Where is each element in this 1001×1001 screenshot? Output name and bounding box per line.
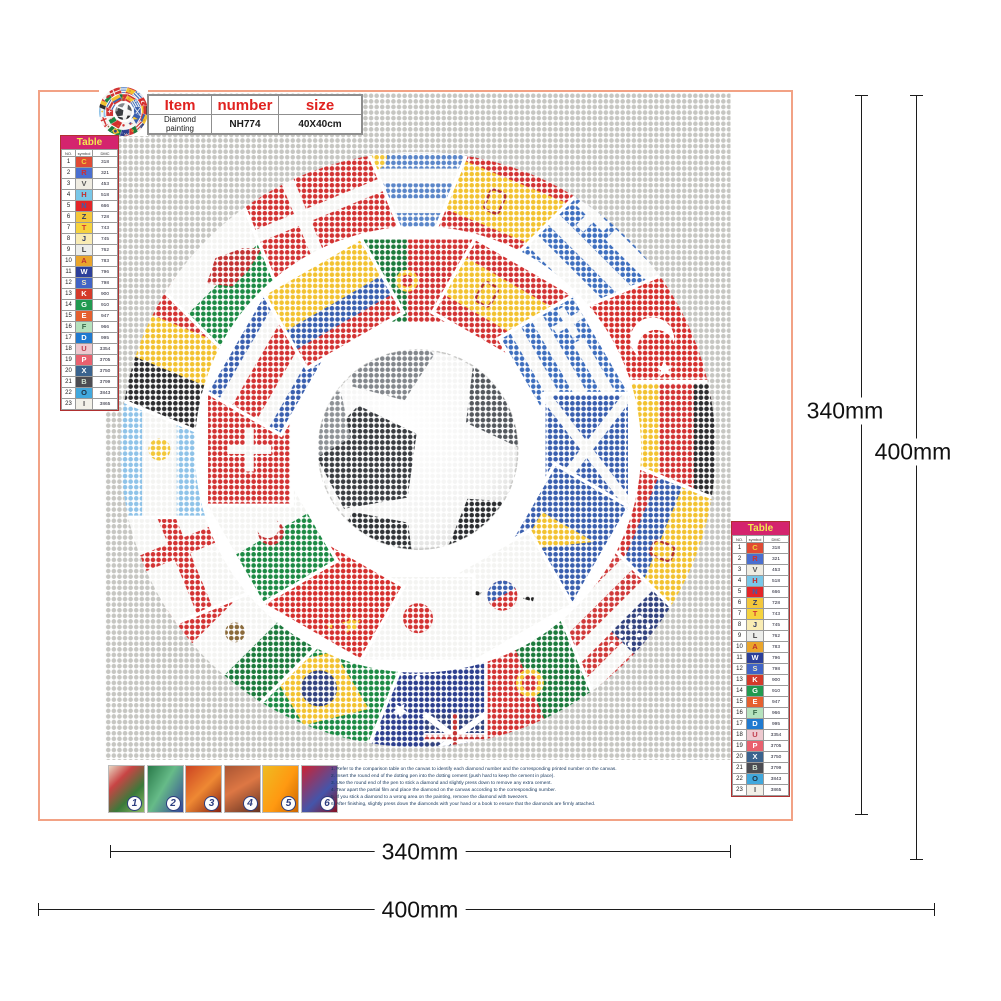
color-row: 9L762 (733, 631, 789, 642)
color-code: 745 (93, 234, 118, 245)
color-symbol: C (747, 543, 764, 554)
color-code: 910 (93, 300, 118, 311)
color-code: 745 (764, 620, 789, 631)
color-no: 21 (62, 377, 76, 388)
color-code: 743 (93, 223, 118, 234)
color-symbol: U (747, 730, 764, 741)
color-code: 798 (93, 278, 118, 289)
color-table-left: TableNO.symbolDMC1C3182R3213V4534H5185N6… (60, 135, 119, 411)
color-no: 4 (62, 190, 76, 201)
color-code: 966 (764, 708, 789, 719)
dim-label-bottom-inner: 340mm (375, 839, 466, 866)
step-number: 2 (166, 796, 181, 811)
step-photo-5: 5 (262, 765, 299, 813)
color-symbol: F (747, 708, 764, 719)
color-row: 13K900 (62, 289, 118, 300)
instruction-list: 1. Refer to the comparison table on the … (331, 766, 596, 808)
color-no: 18 (733, 730, 747, 741)
instruction-line: 1. Refer to the comparison table on the … (331, 766, 596, 773)
color-no: 23 (62, 399, 76, 410)
color-symbol: X (747, 752, 764, 763)
color-symbol: B (747, 763, 764, 774)
color-row: 23I3865 (733, 785, 789, 796)
dim-tick (855, 814, 868, 815)
color-symbol: G (76, 300, 93, 311)
color-symbol: P (76, 355, 93, 366)
color-no: 6 (62, 212, 76, 223)
color-symbol: O (76, 388, 93, 399)
color-symbol: W (76, 267, 93, 278)
color-symbol: K (747, 675, 764, 686)
dim-tick (934, 903, 935, 916)
instruction-line: 6. After finishing, slightly press down … (331, 801, 596, 808)
color-row: 12S798 (62, 278, 118, 289)
color-table-right: TableNO.symbolDMC1C3182R3213V4534H5185N6… (731, 521, 790, 797)
color-row: 15E947 (62, 311, 118, 322)
color-symbol: N (76, 201, 93, 212)
color-code: 666 (764, 587, 789, 598)
color-code: 321 (93, 168, 118, 179)
color-no: 8 (733, 620, 747, 631)
step-photo-3: 3 (185, 765, 222, 813)
color-row: 17D995 (733, 719, 789, 730)
color-symbol: L (747, 631, 764, 642)
color-table-title: Table (61, 136, 118, 149)
item-number: NH774 (212, 115, 279, 135)
color-row: 23I3865 (62, 399, 118, 410)
color-row: 1C318 (733, 543, 789, 554)
color-symbol: R (76, 168, 93, 179)
color-no: 21 (733, 763, 747, 774)
color-code: 728 (93, 212, 118, 223)
instruction-line: 3. Use the round end of the pen to stick… (331, 780, 596, 787)
color-code: 728 (764, 598, 789, 609)
dim-tick (910, 95, 923, 96)
color-symbol: Z (747, 598, 764, 609)
color-code: 666 (93, 201, 118, 212)
color-row: 19P3705 (62, 355, 118, 366)
col-symbol: symbol (747, 536, 764, 543)
item-col-header: Item (148, 95, 212, 115)
color-code: 3705 (93, 355, 118, 366)
diamond-canvas (105, 93, 731, 760)
color-no: 6 (733, 598, 747, 609)
dim-label-right-inner: 340mm (800, 398, 891, 425)
color-symbol: A (747, 642, 764, 653)
col-no: NO. (62, 150, 76, 157)
color-symbol: H (747, 576, 764, 587)
color-no: 4 (733, 576, 747, 587)
color-code: 3865 (93, 399, 118, 410)
flags-soccer-artwork (105, 93, 731, 760)
item-size: 40X40cm (279, 115, 363, 135)
color-no: 13 (62, 289, 76, 300)
color-row: 20X3750 (62, 366, 118, 377)
color-code: 995 (93, 333, 118, 344)
color-symbol: I (747, 785, 764, 796)
dimension-line-right-outer (916, 95, 917, 860)
color-row: 3V453 (733, 565, 789, 576)
color-row: 3V453 (62, 179, 118, 190)
color-no: 17 (62, 333, 76, 344)
color-row: 17D995 (62, 333, 118, 344)
color-row: 20X3750 (733, 752, 789, 763)
color-code: 783 (93, 256, 118, 267)
color-no: 10 (733, 642, 747, 653)
color-symbol: J (747, 620, 764, 631)
diamond-painting-product-sheet: Item number size Diamond painting NH774 … (0, 0, 1001, 1001)
instruction-line: 4. Tear apart the partial film and place… (331, 787, 596, 794)
color-code: 3843 (764, 774, 789, 785)
color-table-title: Table (732, 522, 789, 535)
step-photo-1: 1 (108, 765, 145, 813)
color-code: 910 (764, 686, 789, 697)
color-symbol: K (76, 289, 93, 300)
color-symbol: B (76, 377, 93, 388)
color-no: 12 (733, 664, 747, 675)
color-symbol: L (76, 245, 93, 256)
color-row: 11W796 (733, 653, 789, 664)
color-no: 5 (733, 587, 747, 598)
step-number: 3 (204, 796, 219, 811)
color-symbol: U (76, 344, 93, 355)
color-code: 3865 (764, 785, 789, 796)
dim-tick (855, 95, 868, 96)
color-symbol: I (76, 399, 93, 410)
color-code: 900 (93, 289, 118, 300)
color-code: 3354 (764, 730, 789, 741)
color-symbol: G (747, 686, 764, 697)
color-row: 2R321 (62, 168, 118, 179)
color-no: 20 (733, 752, 747, 763)
color-code: 762 (93, 245, 118, 256)
color-symbol: S (76, 278, 93, 289)
color-no: 16 (733, 708, 747, 719)
color-no: 16 (62, 322, 76, 333)
color-no: 17 (733, 719, 747, 730)
instruction-line: 5. If you stick a diamond to a wrong are… (331, 794, 596, 801)
color-symbol: Z (76, 212, 93, 223)
color-symbol: D (76, 333, 93, 344)
color-symbol: W (747, 653, 764, 664)
color-symbol: N (747, 587, 764, 598)
color-symbol: A (76, 256, 93, 267)
color-symbol: J (76, 234, 93, 245)
color-no: 18 (62, 344, 76, 355)
color-code: 318 (93, 157, 118, 168)
color-no: 3 (62, 179, 76, 190)
color-symbol: X (76, 366, 93, 377)
color-no: 14 (733, 686, 747, 697)
color-row: 8J745 (62, 234, 118, 245)
color-symbol: O (747, 774, 764, 785)
color-no: 1 (62, 157, 76, 168)
dim-tick (38, 903, 39, 916)
color-row: 4H518 (62, 190, 118, 201)
color-no: 19 (733, 741, 747, 752)
color-symbol: P (747, 741, 764, 752)
color-no: 11 (62, 267, 76, 278)
color-row: 18U3354 (62, 344, 118, 355)
color-symbol: C (76, 157, 93, 168)
color-code: 3799 (764, 763, 789, 774)
color-row: 13K900 (733, 675, 789, 686)
color-row: 5N666 (62, 201, 118, 212)
color-row: 1C318 (62, 157, 118, 168)
color-row: 4H518 (733, 576, 789, 587)
color-code: 900 (764, 675, 789, 686)
color-code: 995 (764, 719, 789, 730)
dim-tick (730, 845, 731, 858)
step-thumbnails: 123456 (108, 765, 338, 811)
color-row: 8J745 (733, 620, 789, 631)
product-name: Diamond painting (148, 115, 212, 135)
color-no: 13 (733, 675, 747, 686)
color-row: 5N666 (733, 587, 789, 598)
color-row: 22O3843 (62, 388, 118, 399)
color-no: 9 (733, 631, 747, 642)
step-number: 5 (281, 796, 296, 811)
color-code: 321 (764, 554, 789, 565)
color-no: 22 (733, 774, 747, 785)
step-photo-4: 4 (224, 765, 261, 813)
color-row: 14G910 (733, 686, 789, 697)
number-col-header: number (212, 95, 279, 115)
dim-label-bottom-outer: 400mm (375, 897, 466, 924)
color-no: 7 (62, 223, 76, 234)
color-code: 3799 (93, 377, 118, 388)
color-symbol: D (747, 719, 764, 730)
color-code: 796 (93, 267, 118, 278)
color-no: 5 (62, 201, 76, 212)
color-code: 783 (764, 642, 789, 653)
color-no: 23 (733, 785, 747, 796)
dim-tick (110, 845, 111, 858)
dim-tick (910, 859, 923, 860)
color-row: 10A783 (62, 256, 118, 267)
step-number: 1 (127, 796, 142, 811)
color-no: 7 (733, 609, 747, 620)
color-symbol: T (747, 609, 764, 620)
color-symbol: V (747, 565, 764, 576)
color-no: 15 (733, 697, 747, 708)
col-symbol: symbol (76, 150, 93, 157)
color-row: 21B3799 (62, 377, 118, 388)
color-no: 20 (62, 366, 76, 377)
color-code: 966 (93, 322, 118, 333)
color-symbol: E (76, 311, 93, 322)
col-code: DMC (764, 536, 789, 543)
color-symbol: S (747, 664, 764, 675)
color-row: 9L762 (62, 245, 118, 256)
dimension-line-bottom-outer (38, 909, 935, 910)
color-row: 6Z728 (733, 598, 789, 609)
color-code: 947 (764, 697, 789, 708)
color-no: 2 (62, 168, 76, 179)
color-code: 762 (764, 631, 789, 642)
color-symbol: R (747, 554, 764, 565)
color-code: 3750 (764, 752, 789, 763)
color-code: 453 (93, 179, 118, 190)
color-no: 9 (62, 245, 76, 256)
col-no: NO. (733, 536, 747, 543)
color-row: 16F966 (62, 322, 118, 333)
color-code: 518 (764, 576, 789, 587)
color-symbol: H (76, 190, 93, 201)
dimension-line-right-inner (861, 95, 862, 815)
color-no: 1 (733, 543, 747, 554)
color-code: 3705 (764, 741, 789, 752)
color-row: 22O3843 (733, 774, 789, 785)
color-row: 7T743 (62, 223, 118, 234)
color-row: 12S798 (733, 664, 789, 675)
color-code: 3354 (93, 344, 118, 355)
color-code: 796 (764, 653, 789, 664)
col-code: DMC (93, 150, 118, 157)
color-code: 318 (764, 543, 789, 554)
color-no: 12 (62, 278, 76, 289)
step-number: 4 (243, 796, 258, 811)
color-row: 16F966 (733, 708, 789, 719)
color-row: 7T743 (733, 609, 789, 620)
color-no: 10 (62, 256, 76, 267)
color-code: 743 (764, 609, 789, 620)
color-no: 22 (62, 388, 76, 399)
color-row: 2R321 (733, 554, 789, 565)
color-no: 11 (733, 653, 747, 664)
dim-label-right-outer: 400mm (868, 439, 959, 466)
instruction-line: 2. Insert the round end of the dotting p… (331, 773, 596, 780)
color-symbol: T (76, 223, 93, 234)
color-no: 2 (733, 554, 747, 565)
color-row: 11W796 (62, 267, 118, 278)
color-code: 3750 (93, 366, 118, 377)
color-no: 3 (733, 565, 747, 576)
color-no: 8 (62, 234, 76, 245)
color-symbol: F (76, 322, 93, 333)
flags-circle-logo-icon (99, 87, 148, 136)
color-row: 15E947 (733, 697, 789, 708)
color-code: 453 (764, 565, 789, 576)
item-header-table: Item number size Diamond painting NH774 … (147, 94, 363, 135)
color-row: 21B3799 (733, 763, 789, 774)
color-symbol: E (747, 697, 764, 708)
color-symbol: V (76, 179, 93, 190)
color-code: 3843 (93, 388, 118, 399)
color-row: 6Z728 (62, 212, 118, 223)
color-no: 14 (62, 300, 76, 311)
size-col-header: size (279, 95, 363, 115)
color-code: 947 (93, 311, 118, 322)
color-row: 19P3705 (733, 741, 789, 752)
step-photo-2: 2 (147, 765, 184, 813)
color-no: 15 (62, 311, 76, 322)
color-row: 14G910 (62, 300, 118, 311)
color-row: 18U3354 (733, 730, 789, 741)
color-code: 798 (764, 664, 789, 675)
color-row: 10A783 (733, 642, 789, 653)
color-code: 518 (93, 190, 118, 201)
color-no: 19 (62, 355, 76, 366)
